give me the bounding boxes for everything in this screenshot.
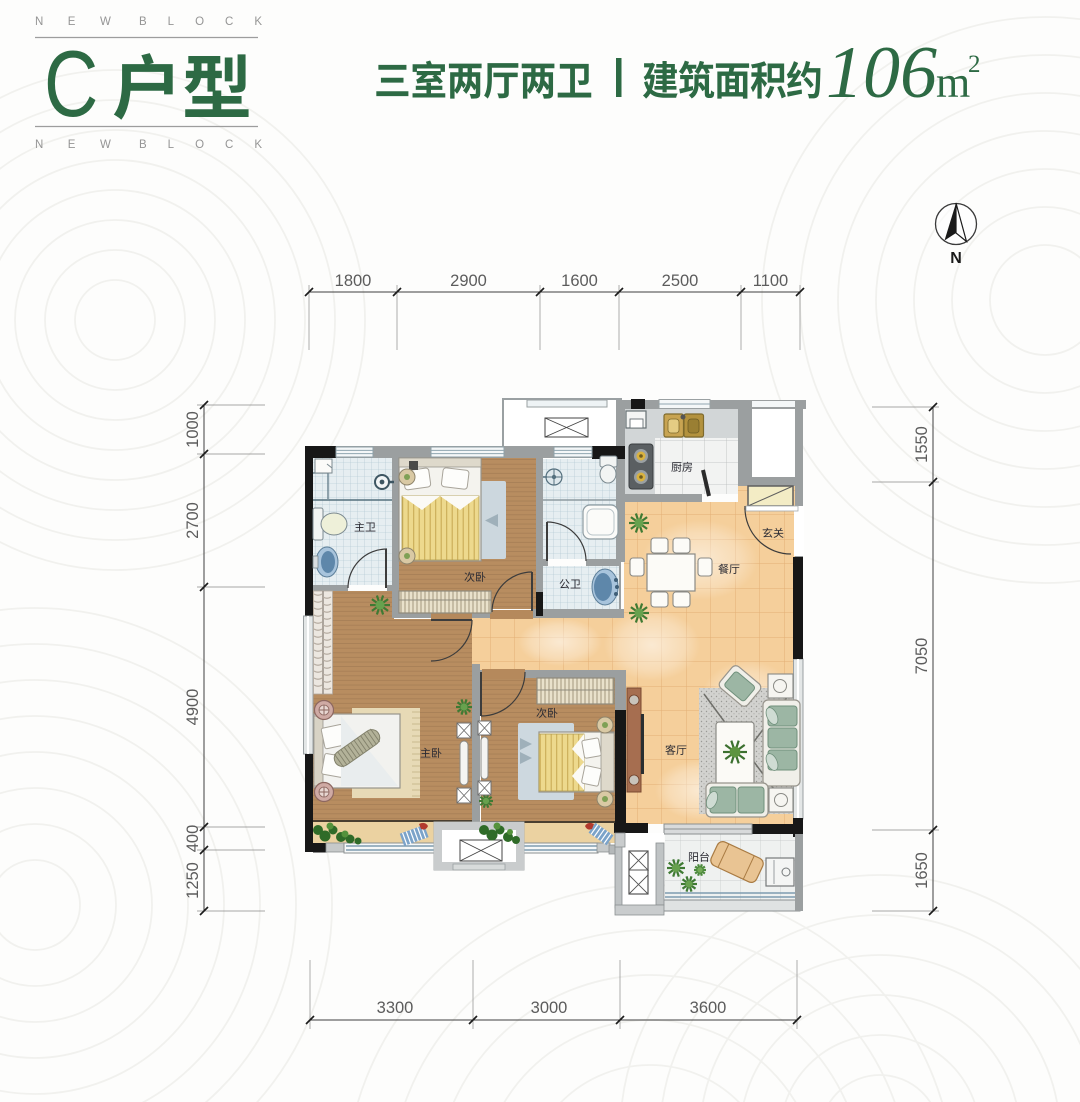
svg-text:2500: 2500 — [662, 272, 699, 290]
svg-text:106: 106 — [826, 32, 937, 114]
svg-text:BLOCK: BLOCK — [139, 16, 283, 28]
svg-text:1250: 1250 — [184, 862, 202, 899]
svg-text:2700: 2700 — [184, 502, 202, 539]
svg-text:C: C — [44, 32, 98, 137]
svg-text:400: 400 — [184, 825, 202, 853]
svg-text:2: 2 — [968, 51, 981, 78]
svg-text:1650: 1650 — [913, 852, 931, 889]
svg-text:2900: 2900 — [450, 272, 487, 290]
svg-text:1600: 1600 — [561, 272, 598, 290]
svg-text:m: m — [936, 58, 970, 107]
svg-text:NEW: NEW — [35, 139, 135, 151]
svg-text:3600: 3600 — [690, 999, 727, 1017]
svg-text:BLOCK: BLOCK — [139, 139, 283, 151]
svg-text:7050: 7050 — [913, 638, 931, 675]
svg-text:3300: 3300 — [377, 999, 414, 1017]
svg-text:N: N — [950, 250, 962, 267]
svg-text:1800: 1800 — [335, 272, 372, 290]
svg-text:1000: 1000 — [184, 411, 202, 448]
svg-text:4900: 4900 — [184, 689, 202, 726]
svg-text:NEW: NEW — [35, 16, 135, 28]
svg-text:1550: 1550 — [913, 426, 931, 463]
svg-text:3000: 3000 — [531, 999, 568, 1017]
svg-text:1100: 1100 — [753, 272, 788, 290]
